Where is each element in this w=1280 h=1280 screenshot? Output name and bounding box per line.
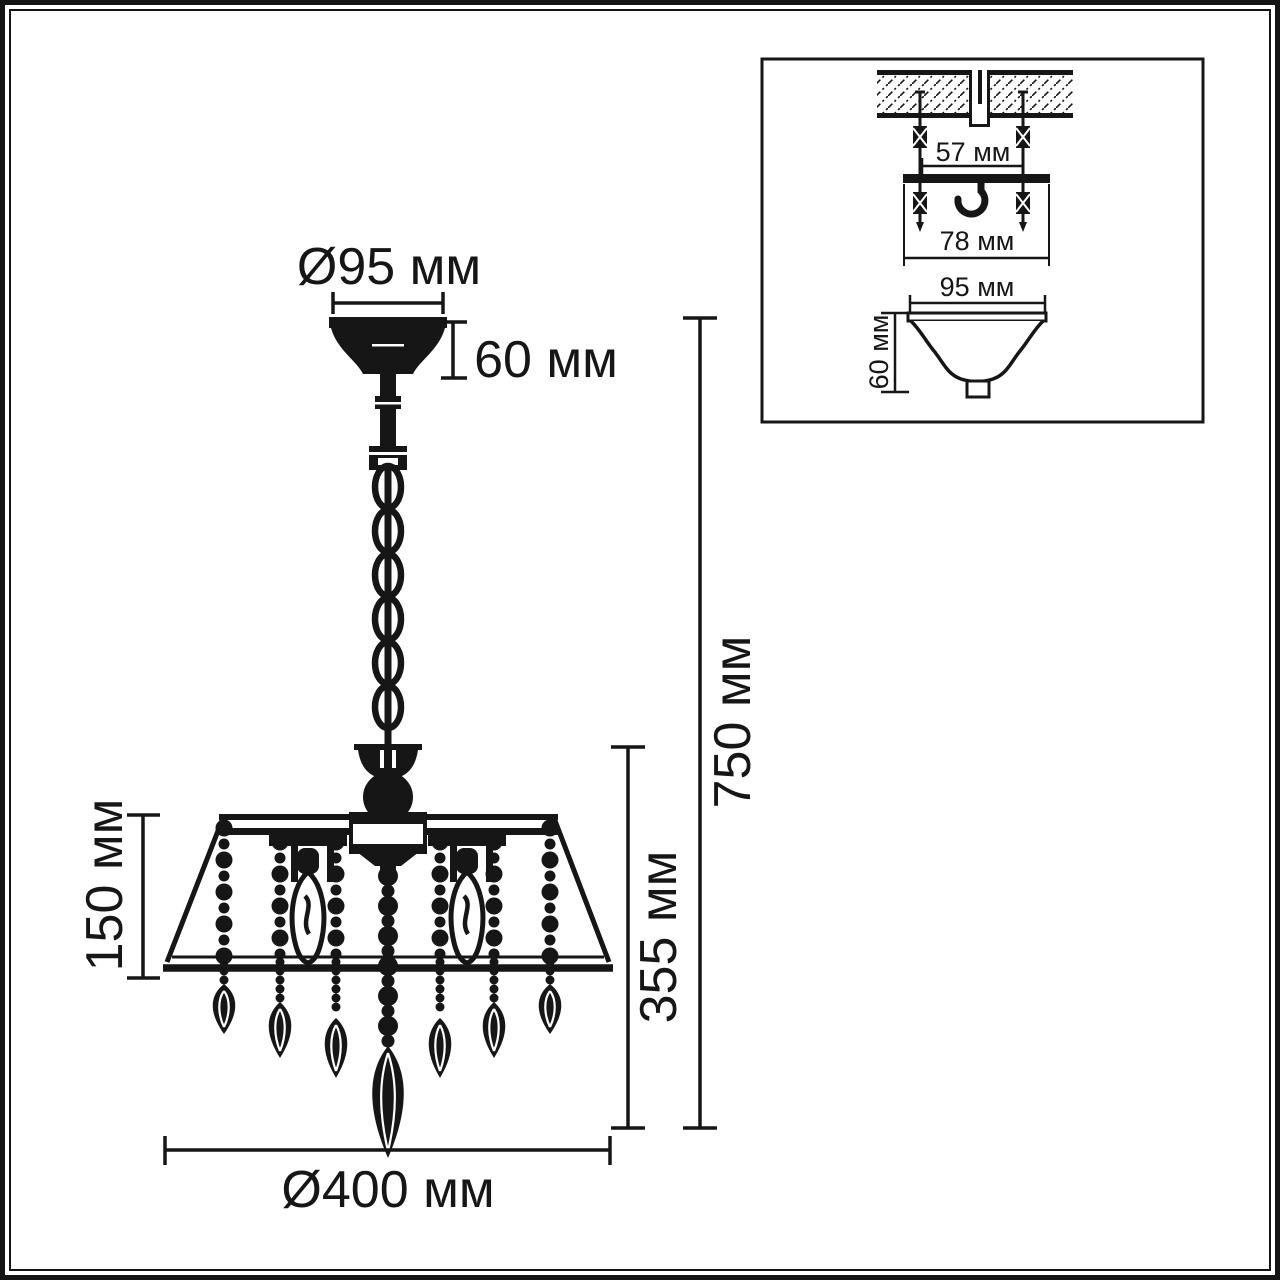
dimension-lines <box>127 318 717 1165</box>
mounting-inset: 57 мм 78 мм 95 мм 60 мм <box>762 59 1203 422</box>
label-inset-canopy-diameter: 95 мм <box>940 272 1015 302</box>
label-canopy-height: 60 мм <box>474 331 618 389</box>
label-shade-height: 150 мм <box>76 799 134 972</box>
label-bracket-width: 78 мм <box>940 226 1015 256</box>
label-canopy-diameter: Ø95 мм <box>297 238 481 296</box>
chain-drawing <box>375 466 401 746</box>
label-screw-spacing: 57 мм <box>936 137 1011 167</box>
label-inset-canopy-height: 60 мм <box>864 315 894 390</box>
drawing-canvas: Ø95 мм 60 мм 750 мм 355 мм 150 мм Ø400 м… <box>0 0 1280 1280</box>
dim-60-top <box>441 322 467 378</box>
label-body-height: 355 мм <box>630 851 688 1024</box>
label-body-diameter: Ø400 мм <box>281 1161 494 1219</box>
central-hub <box>351 814 425 873</box>
label-overall-height: 750 мм <box>704 636 762 809</box>
cup-and-ball <box>354 744 422 822</box>
drawing-page: Ø95 мм 60 мм 750 мм 355 мм 150 мм Ø400 м… <box>0 0 1280 1280</box>
chandelier-drawing <box>163 292 613 1158</box>
bead-strands-and-drops <box>213 820 562 1159</box>
